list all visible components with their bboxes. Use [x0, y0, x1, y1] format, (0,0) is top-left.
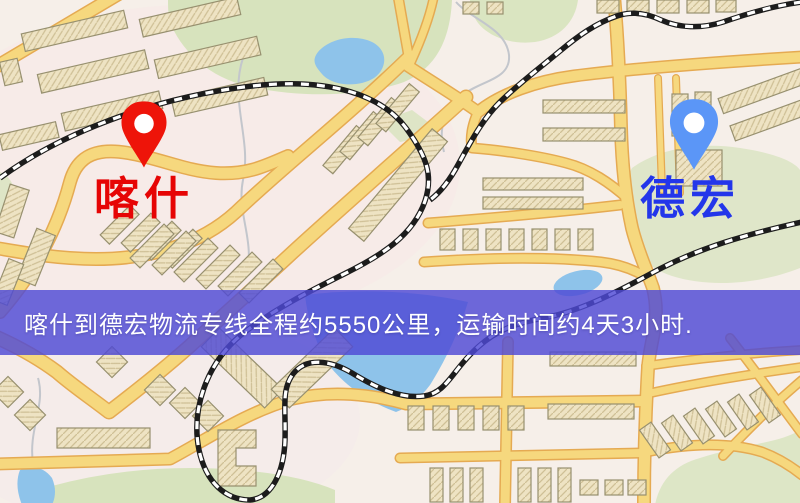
pin-hole	[684, 112, 705, 133]
map-pin-icon	[670, 99, 718, 170]
map-pin-icon	[121, 101, 166, 167]
destination-pin-marker[interactable]	[666, 98, 722, 172]
route-info-banner: 喀什到德宏物流专线全程约5550公里，运输时间约4天3小时.	[0, 290, 800, 355]
map-canvas[interactable]	[0, 0, 800, 503]
destination-city-label: 德宏	[630, 176, 750, 222]
route-info-text: 喀什到德宏物流专线全程约5550公里，运输时间约4天3小时.	[24, 305, 693, 340]
origin-city-label: 喀什	[84, 176, 204, 222]
origin-pin-marker[interactable]	[118, 100, 170, 170]
map-view: 喀什 德宏 喀什到德宏物流专线全程约5550公里，运输时间约4天3小时.	[0, 0, 800, 503]
pin-hole	[134, 114, 154, 134]
